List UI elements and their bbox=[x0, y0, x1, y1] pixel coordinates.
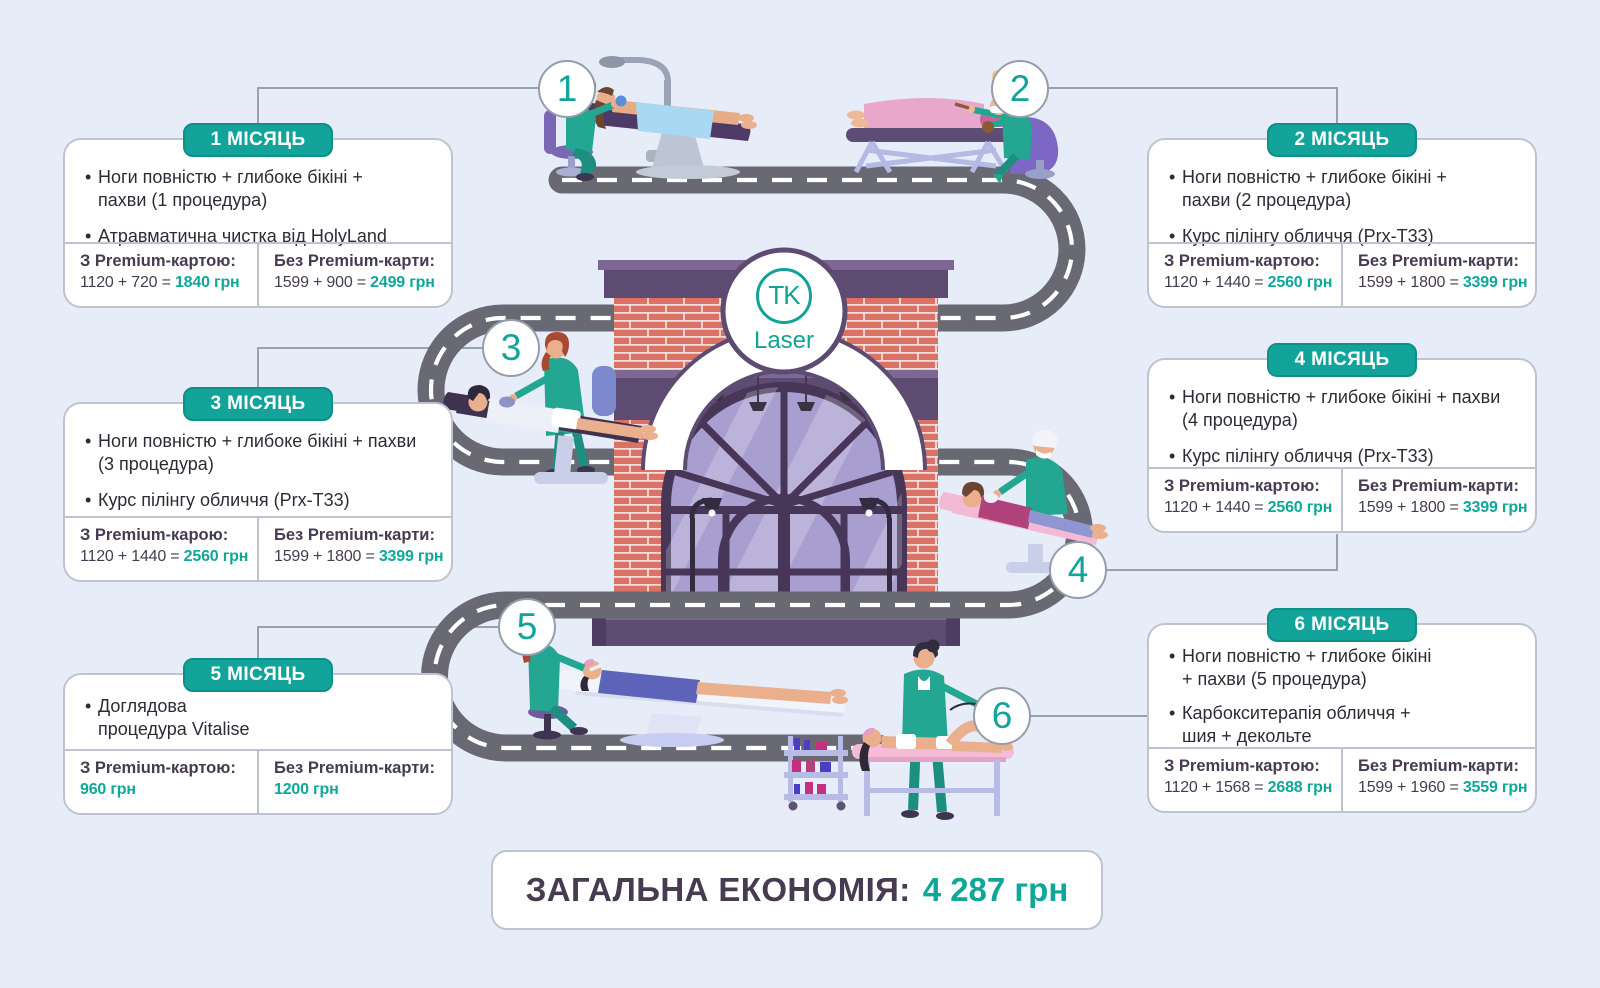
bullet-icon bbox=[1169, 166, 1182, 213]
bullet-icon bbox=[85, 489, 98, 512]
month-card-4: 4 МІСЯЦЬ Ноги повністю + глибоке бікіні … bbox=[1147, 358, 1537, 533]
total-savings-label: ЗАГАЛЬНА ЕКОНОМІЯ: bbox=[526, 871, 911, 909]
bullet-icon bbox=[85, 430, 98, 477]
price-with-card: З Premium-картою: 1120 + 1440 = 2560 грн bbox=[1149, 469, 1341, 531]
list-item: Ноги повністю + глибоке бікіні + пахви (… bbox=[85, 166, 437, 213]
price-with-card: З Premium-картою: 1120 + 1440 = 2560 грн bbox=[1149, 244, 1341, 306]
price-with-card: З Premium-картою: 1120 + 720 = 1840 грн bbox=[65, 244, 257, 306]
price-without-card: Без Premium-карти: 1599 + 1960 = 3559 гр… bbox=[1341, 749, 1535, 811]
month-1-items: Ноги повністю + глибоке бікіні + пахви (… bbox=[65, 140, 451, 254]
stop-5-circle: 5 bbox=[498, 598, 556, 656]
clinic-logo: TK Laser bbox=[724, 254, 844, 368]
price-with-card: З Premium-карою: 1120 + 1440 = 2560 грн bbox=[65, 518, 257, 580]
price-with-card: З Premium-картою: 960 грн bbox=[65, 751, 257, 813]
list-item: Ноги повністю + глибоке бікіні + пахви (… bbox=[1169, 645, 1521, 692]
month-6-pill: 6 МІСЯЦЬ bbox=[1267, 608, 1417, 642]
bullet-icon bbox=[85, 166, 98, 213]
month-3-prices: З Premium-карою: 1120 + 1440 = 2560 грн … bbox=[65, 516, 451, 580]
month-2-items: Ноги повністю + глибоке бікіні + пахви (… bbox=[1149, 140, 1535, 254]
price-with-card: З Premium-картою: 1120 + 1568 = 2688 грн bbox=[1149, 749, 1341, 811]
month-card-3: 3 МІСЯЦЬ Ноги повністю + глибоке бікіні … bbox=[63, 402, 453, 582]
price-without-card: Без Premium-карти: 1599 + 900 = 2499 грн bbox=[257, 244, 451, 306]
price-total: 2560 грн bbox=[1268, 274, 1333, 291]
bullet-icon bbox=[1169, 702, 1182, 749]
price-total: 2560 грн bbox=[184, 548, 249, 565]
price-without-card: Без Premium-карти: 1200 грн bbox=[257, 751, 451, 813]
month-4-prices: З Premium-картою: 1120 + 1440 = 2560 грн… bbox=[1149, 467, 1535, 531]
month-3-pill: 3 МІСЯЦЬ bbox=[183, 387, 333, 421]
bullet-icon bbox=[1169, 386, 1182, 433]
price-total: 960 грн bbox=[80, 781, 136, 798]
stop-1-circle: 1 bbox=[538, 60, 596, 118]
month-5-pill: 5 МІСЯЦЬ bbox=[183, 658, 333, 692]
price-without-card: Без Premium-карти: 1599 + 1800 = 3399 гр… bbox=[257, 518, 451, 580]
stop-1-number: 1 bbox=[557, 68, 578, 110]
month-2-prices: З Premium-картою: 1120 + 1440 = 2560 грн… bbox=[1149, 242, 1535, 306]
price-total: 1840 грн bbox=[175, 274, 240, 291]
stop-2-circle: 2 bbox=[991, 60, 1049, 118]
stop-5-number: 5 bbox=[517, 606, 538, 648]
price-total: 3399 грн bbox=[1463, 499, 1528, 516]
stop-2-number: 2 bbox=[1010, 68, 1031, 110]
month-card-2: 2 МІСЯЦЬ Ноги повністю + глибоке бікіні … bbox=[1147, 138, 1537, 308]
stop-3-circle: 3 bbox=[482, 319, 540, 377]
month-3-items: Ноги повністю + глибоке бікіні + пахви (… bbox=[65, 404, 451, 518]
list-item: Карбокситерапія обличчя + шия + декольте bbox=[1169, 702, 1521, 749]
total-savings-value: 4 287 грн bbox=[923, 871, 1069, 909]
month-card-5: 5 МІСЯЦЬ Доглядова процедура Vitalise З … bbox=[63, 673, 453, 815]
month-4-items: Ноги повністю + глибоке бікіні + пахви (… bbox=[1149, 360, 1535, 474]
price-total: 3399 грн bbox=[1463, 274, 1528, 291]
list-item: Ноги повністю + глибоке бікіні + пахви (… bbox=[85, 430, 437, 477]
month-6-prices: З Premium-картою: 1120 + 1568 = 2688 грн… bbox=[1149, 747, 1535, 811]
stop-6-circle: 6 bbox=[973, 687, 1031, 745]
price-total: 1200 грн bbox=[274, 781, 339, 798]
price-total: 3559 грн bbox=[1463, 779, 1528, 796]
price-total: 2499 грн bbox=[370, 274, 435, 291]
logo-bottom-text: Laser bbox=[754, 327, 814, 355]
month-6-items: Ноги повністю + глибоке бікіні + пахви (… bbox=[1149, 625, 1535, 755]
infographic-roadmap: TK Laser 1 2 3 4 5 6 1 МІСЯЦЬ Ноги повні… bbox=[0, 0, 1600, 988]
bullet-icon bbox=[1169, 445, 1182, 468]
stop-4-circle: 4 bbox=[1049, 541, 1107, 599]
month-5-prices: З Premium-картою: 960 грн Без Premium-ка… bbox=[65, 749, 451, 813]
list-item: Курс пілінгу обличчя (Prx-T33) bbox=[1169, 445, 1521, 468]
price-total: 2688 грн bbox=[1268, 779, 1333, 796]
tk-logo-icon: TK bbox=[756, 268, 812, 324]
month-1-pill: 1 МІСЯЦЬ bbox=[183, 123, 333, 157]
month-card-1: 1 МІСЯЦЬ Ноги повністю + глибоке бікіні … bbox=[63, 138, 453, 308]
logo-top-text: TK bbox=[768, 280, 799, 311]
month-4-pill: 4 МІСЯЦЬ bbox=[1267, 343, 1417, 377]
bullet-icon bbox=[85, 695, 98, 742]
price-total: 2560 грн bbox=[1268, 499, 1333, 516]
stop-4-number: 4 bbox=[1068, 549, 1089, 591]
month-2-pill: 2 МІСЯЦЬ bbox=[1267, 123, 1417, 157]
stop-6-number: 6 bbox=[992, 695, 1013, 737]
bullet-icon bbox=[1169, 645, 1182, 692]
total-savings-banner: ЗАГАЛЬНА ЕКОНОМІЯ: 4 287 грн bbox=[491, 850, 1103, 930]
stop-3-number: 3 bbox=[501, 327, 522, 369]
list-item: Ноги повністю + глибоке бікіні + пахви (… bbox=[1169, 386, 1521, 433]
price-without-card: Без Premium-карти: 1599 + 1800 = 3399 гр… bbox=[1341, 244, 1535, 306]
list-item: Ноги повністю + глибоке бікіні + пахви (… bbox=[1169, 166, 1521, 213]
month-card-6: 6 МІСЯЦЬ Ноги повністю + глибоке бікіні … bbox=[1147, 623, 1537, 813]
price-without-card: Без Premium-карти: 1599 + 1800 = 3399 гр… bbox=[1341, 469, 1535, 531]
price-total: 3399 грн bbox=[379, 548, 444, 565]
list-item: Доглядова процедура Vitalise bbox=[85, 695, 437, 742]
month-1-prices: З Premium-картою: 1120 + 720 = 1840 грн … bbox=[65, 242, 451, 306]
list-item: Курс пілінгу обличчя (Prx-T33) bbox=[85, 489, 437, 512]
